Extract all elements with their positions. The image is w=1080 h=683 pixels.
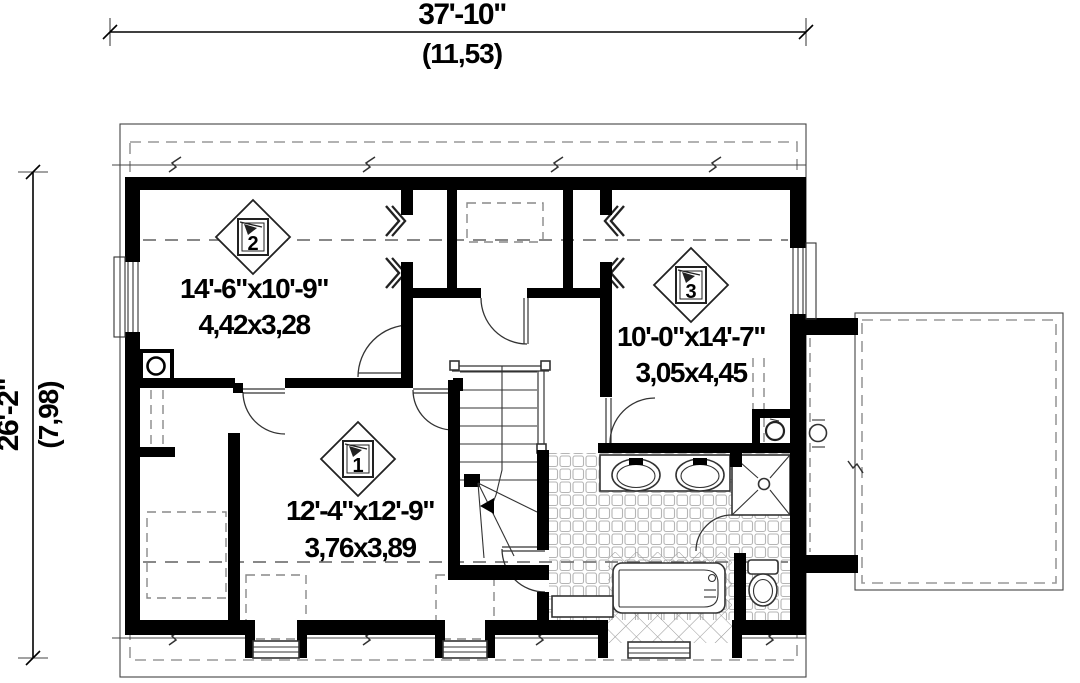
garage-roof-outline (810, 313, 1064, 590)
room-bedroom-3-label: 10'-0"x14'-7" 3,05x4,45 (617, 321, 765, 388)
dormer-window-3 (628, 642, 690, 658)
bedroom2-door (243, 389, 285, 434)
room-size-imperial: 14'-6"x10'-9" (180, 273, 328, 304)
toilet (748, 560, 778, 606)
room-bedroom-1-label: 12'-4"x12'-9" 3,76x3,89 (286, 495, 434, 563)
room-size-metric: 3,76x3,89 (304, 532, 416, 563)
faucet-icon (693, 458, 707, 465)
room-marker-number: 1 (352, 455, 363, 477)
laundry-nook (752, 409, 790, 444)
vent-circle-icon (810, 420, 827, 447)
chimney (141, 351, 172, 381)
floor-plan-drawing: 2 3 1 14'-6"x10'-9" 4,42x3,28 10'-0"x14'… (0, 0, 1080, 683)
window-west (114, 257, 141, 337)
shower-drain-icon (759, 479, 770, 490)
window-east (789, 243, 816, 319)
room-bedroom-2-label: 14'-6"x10'-9" 4,42x3,28 (180, 273, 328, 340)
room-marker-number: 2 (247, 233, 258, 255)
walk-in-closet (467, 203, 543, 344)
room-size-imperial: 10'-0"x14'-7" (617, 321, 765, 352)
dimension-left-imperial: 26'-2" (0, 379, 25, 452)
stair-direction-line (480, 366, 502, 514)
room-marker-3: 3 (654, 248, 728, 322)
stair-winders (464, 474, 537, 558)
vanity-sinks (600, 455, 730, 491)
room-marker-1: 1 (321, 422, 395, 496)
stair-railing (450, 361, 550, 453)
closet-door (481, 298, 528, 344)
room-marker-2: 2 (216, 200, 290, 274)
faucet-icon (629, 458, 643, 465)
bedroom3-door (606, 398, 655, 443)
bedroom1-door (413, 389, 453, 430)
dimension-left-metric: (7,98) (33, 381, 64, 448)
dimension-top: 37'-10" (11,53) (103, 0, 813, 69)
room-size-metric: 4,42x3,28 (198, 309, 310, 340)
room-marker-number: 3 (685, 281, 696, 303)
floor-plan-page: 2 3 1 14'-6"x10'-9" 4,42x3,28 10'-0"x14'… (0, 0, 1080, 683)
stair-treads (460, 372, 537, 480)
dimension-top-imperial: 37'-10" (418, 0, 506, 31)
dimension-top-metric: (11,53) (422, 38, 502, 69)
roof-break-chevron-icon (386, 206, 624, 288)
bathtub (613, 563, 725, 613)
staircase (450, 361, 550, 558)
room-size-metric: 3,05x4,45 (635, 357, 747, 388)
dimension-left: 26'-2" (7,98) (0, 165, 64, 665)
bath-bench (552, 596, 613, 617)
room-size-imperial: 12'-4"x12'-9" (286, 495, 434, 526)
storage-closet (147, 390, 226, 598)
